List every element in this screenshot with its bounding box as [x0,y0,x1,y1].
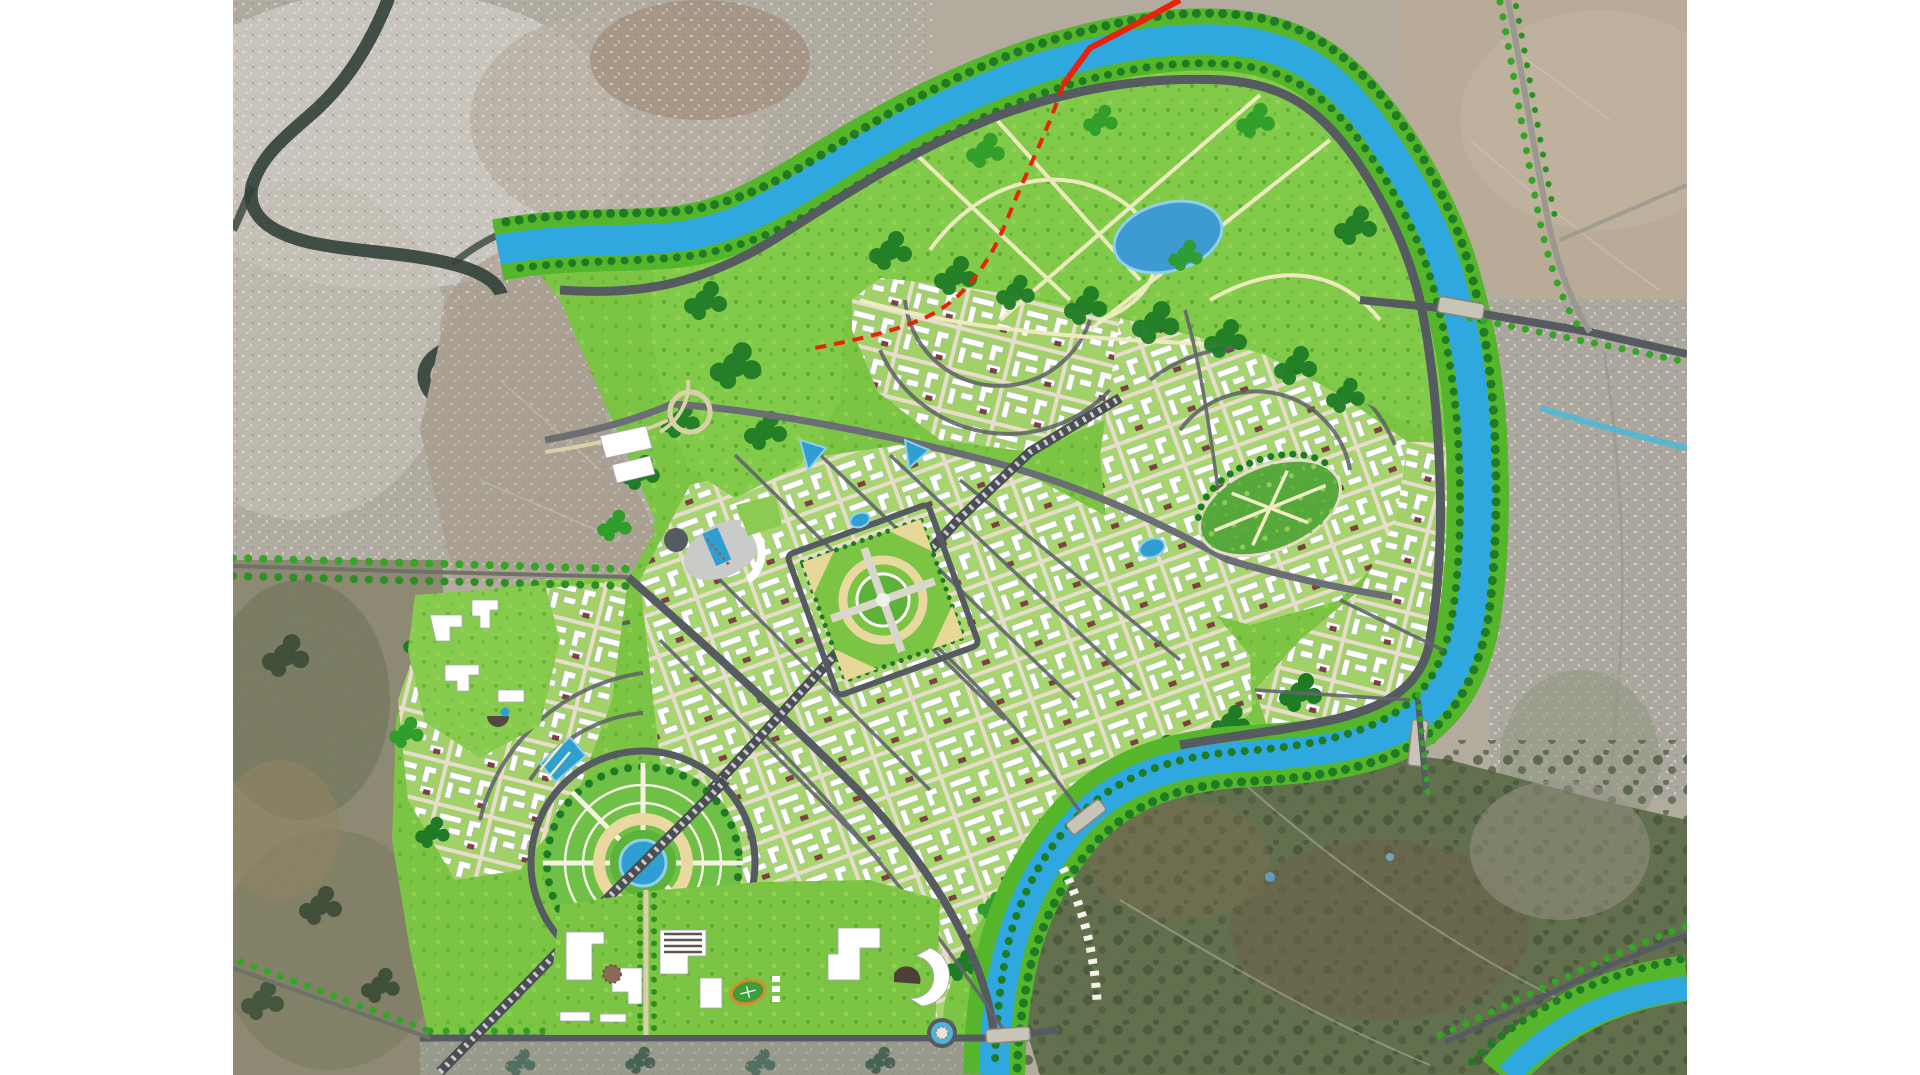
map-canvas [0,0,1920,1075]
page-margin-right [1687,0,1920,1075]
civic-quarter [545,880,950,1035]
south-roundabout [929,1020,955,1046]
page-margin-left [0,0,233,1075]
master-plan-screenshot [0,0,1920,1075]
